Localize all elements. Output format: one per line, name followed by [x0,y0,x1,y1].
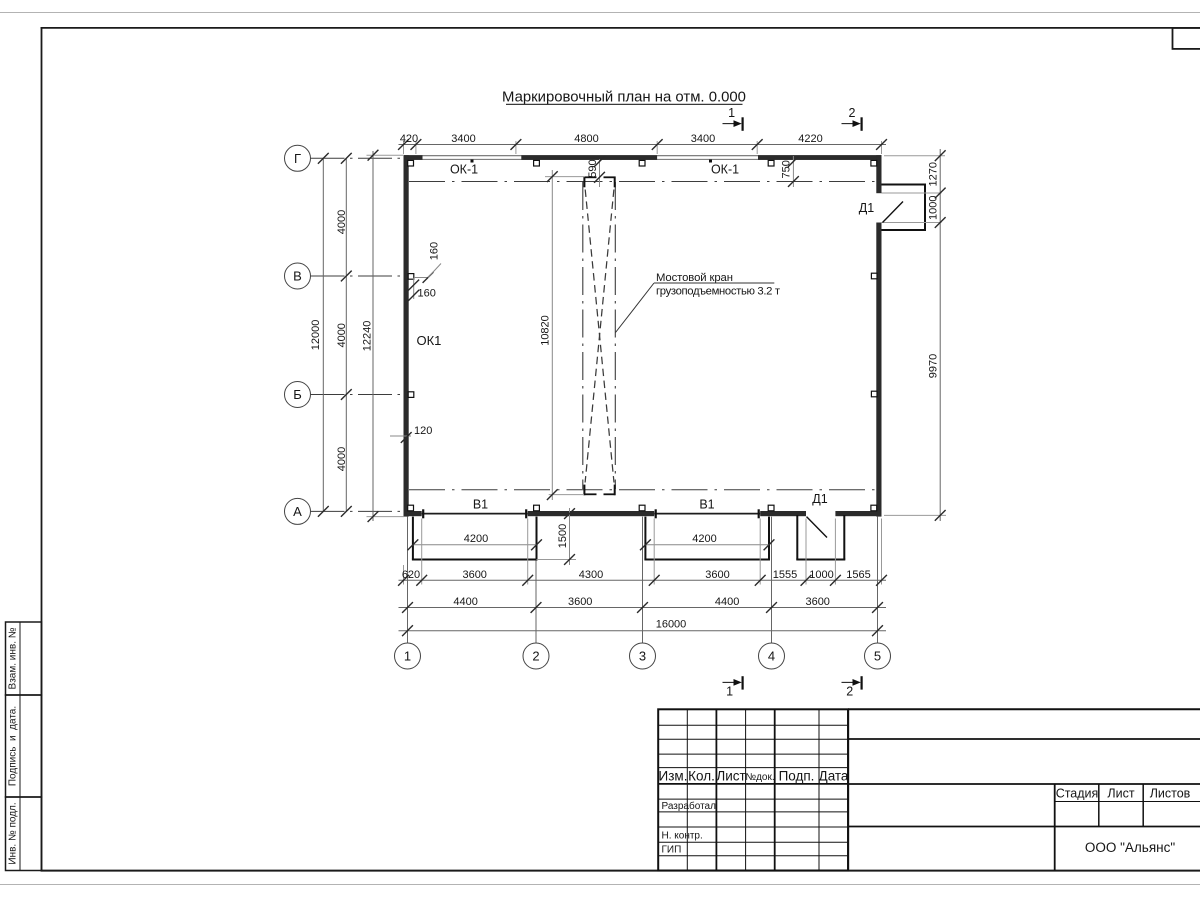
svg-text:3400: 3400 [691,133,715,145]
svg-text:5: 5 [874,649,881,664]
svg-text:10820: 10820 [540,315,552,346]
svg-text:Мостовой кран: Мостовой кран [656,272,733,284]
svg-text:620: 620 [402,569,420,581]
svg-text:4400: 4400 [453,596,477,608]
svg-text:Листов: Листов [1150,787,1191,801]
svg-text:Стадия: Стадия [1056,787,1099,801]
svg-text:Взам. инв. №: Взам. инв. № [8,627,19,689]
svg-text:420: 420 [400,133,418,145]
svg-text:1500: 1500 [557,524,569,548]
svg-text:4300: 4300 [579,569,603,581]
svg-text:1: 1 [726,685,733,699]
svg-text:Изм.: Изм. [659,769,688,784]
svg-text:Дата: Дата [819,769,849,784]
svg-text:9970: 9970 [928,354,940,378]
svg-text:2: 2 [846,685,853,699]
svg-text:4400: 4400 [715,596,739,608]
svg-text:1000: 1000 [809,569,833,581]
svg-text:Лист: Лист [716,769,745,784]
svg-text:3600: 3600 [462,569,486,581]
svg-text:Подп.: Подп. [779,769,815,784]
svg-text:3600: 3600 [805,596,829,608]
svg-text:Кол.: Кол. [688,769,715,784]
svg-text:750: 750 [781,160,793,178]
svg-text:4000: 4000 [336,447,348,471]
svg-text:1555: 1555 [773,569,797,581]
svg-text:В: В [293,269,302,284]
svg-text:590: 590 [587,159,599,177]
svg-text:4220: 4220 [798,133,822,145]
svg-text:№док.: №док. [745,772,774,783]
svg-text:12000: 12000 [310,320,322,351]
svg-text:ОК-1: ОК-1 [711,163,739,177]
svg-text:1: 1 [404,649,411,664]
svg-text:4: 4 [768,649,775,664]
svg-text:3600: 3600 [705,569,729,581]
svg-text:Подпись и дата.: Подпись и дата. [8,706,19,786]
svg-text:Д1: Д1 [859,201,874,215]
svg-text:1: 1 [728,106,735,120]
svg-text:2: 2 [849,106,856,120]
svg-text:160: 160 [418,288,436,300]
svg-text:4200: 4200 [464,533,488,545]
svg-text:1270: 1270 [928,162,940,186]
svg-text:Д1: Д1 [812,492,827,506]
svg-text:16000: 16000 [656,619,687,631]
svg-text:120: 120 [414,425,432,437]
svg-text:2: 2 [532,649,539,664]
svg-text:1000: 1000 [928,195,940,219]
svg-text:В1: В1 [699,498,714,512]
svg-text:Лист: Лист [1107,787,1134,801]
svg-text:3: 3 [639,649,646,664]
svg-text:4000: 4000 [336,323,348,347]
svg-text:ГИП: ГИП [662,845,682,856]
svg-text:Г: Г [294,151,301,166]
svg-text:3600: 3600 [568,596,592,608]
svg-text:Инв. № подл.: Инв. № подл. [8,802,19,864]
svg-text:грузоподъемностью 3.2 т: грузоподъемностью 3.2 т [656,286,780,298]
svg-text:В1: В1 [473,498,488,512]
svg-text:Разработал: Разработал [662,800,717,812]
svg-text:А: А [293,504,302,519]
svg-text:ООО "Альянс": ООО "Альянс" [1085,840,1175,855]
svg-text:12240: 12240 [362,321,374,352]
svg-text:Б: Б [293,387,302,402]
svg-text:ОК1: ОК1 [417,333,442,348]
svg-text:160: 160 [429,242,441,260]
svg-text:ОК-1: ОК-1 [450,163,478,177]
svg-text:Н. контр.: Н. контр. [662,831,703,842]
svg-text:1565: 1565 [846,569,870,581]
svg-text:3400: 3400 [451,133,475,145]
svg-text:4200: 4200 [692,533,716,545]
svg-text:Маркировочный план на отм. 0.0: Маркировочный план на отм. 0.000 [502,90,746,106]
svg-text:4000: 4000 [336,210,348,234]
svg-text:4800: 4800 [574,133,598,145]
